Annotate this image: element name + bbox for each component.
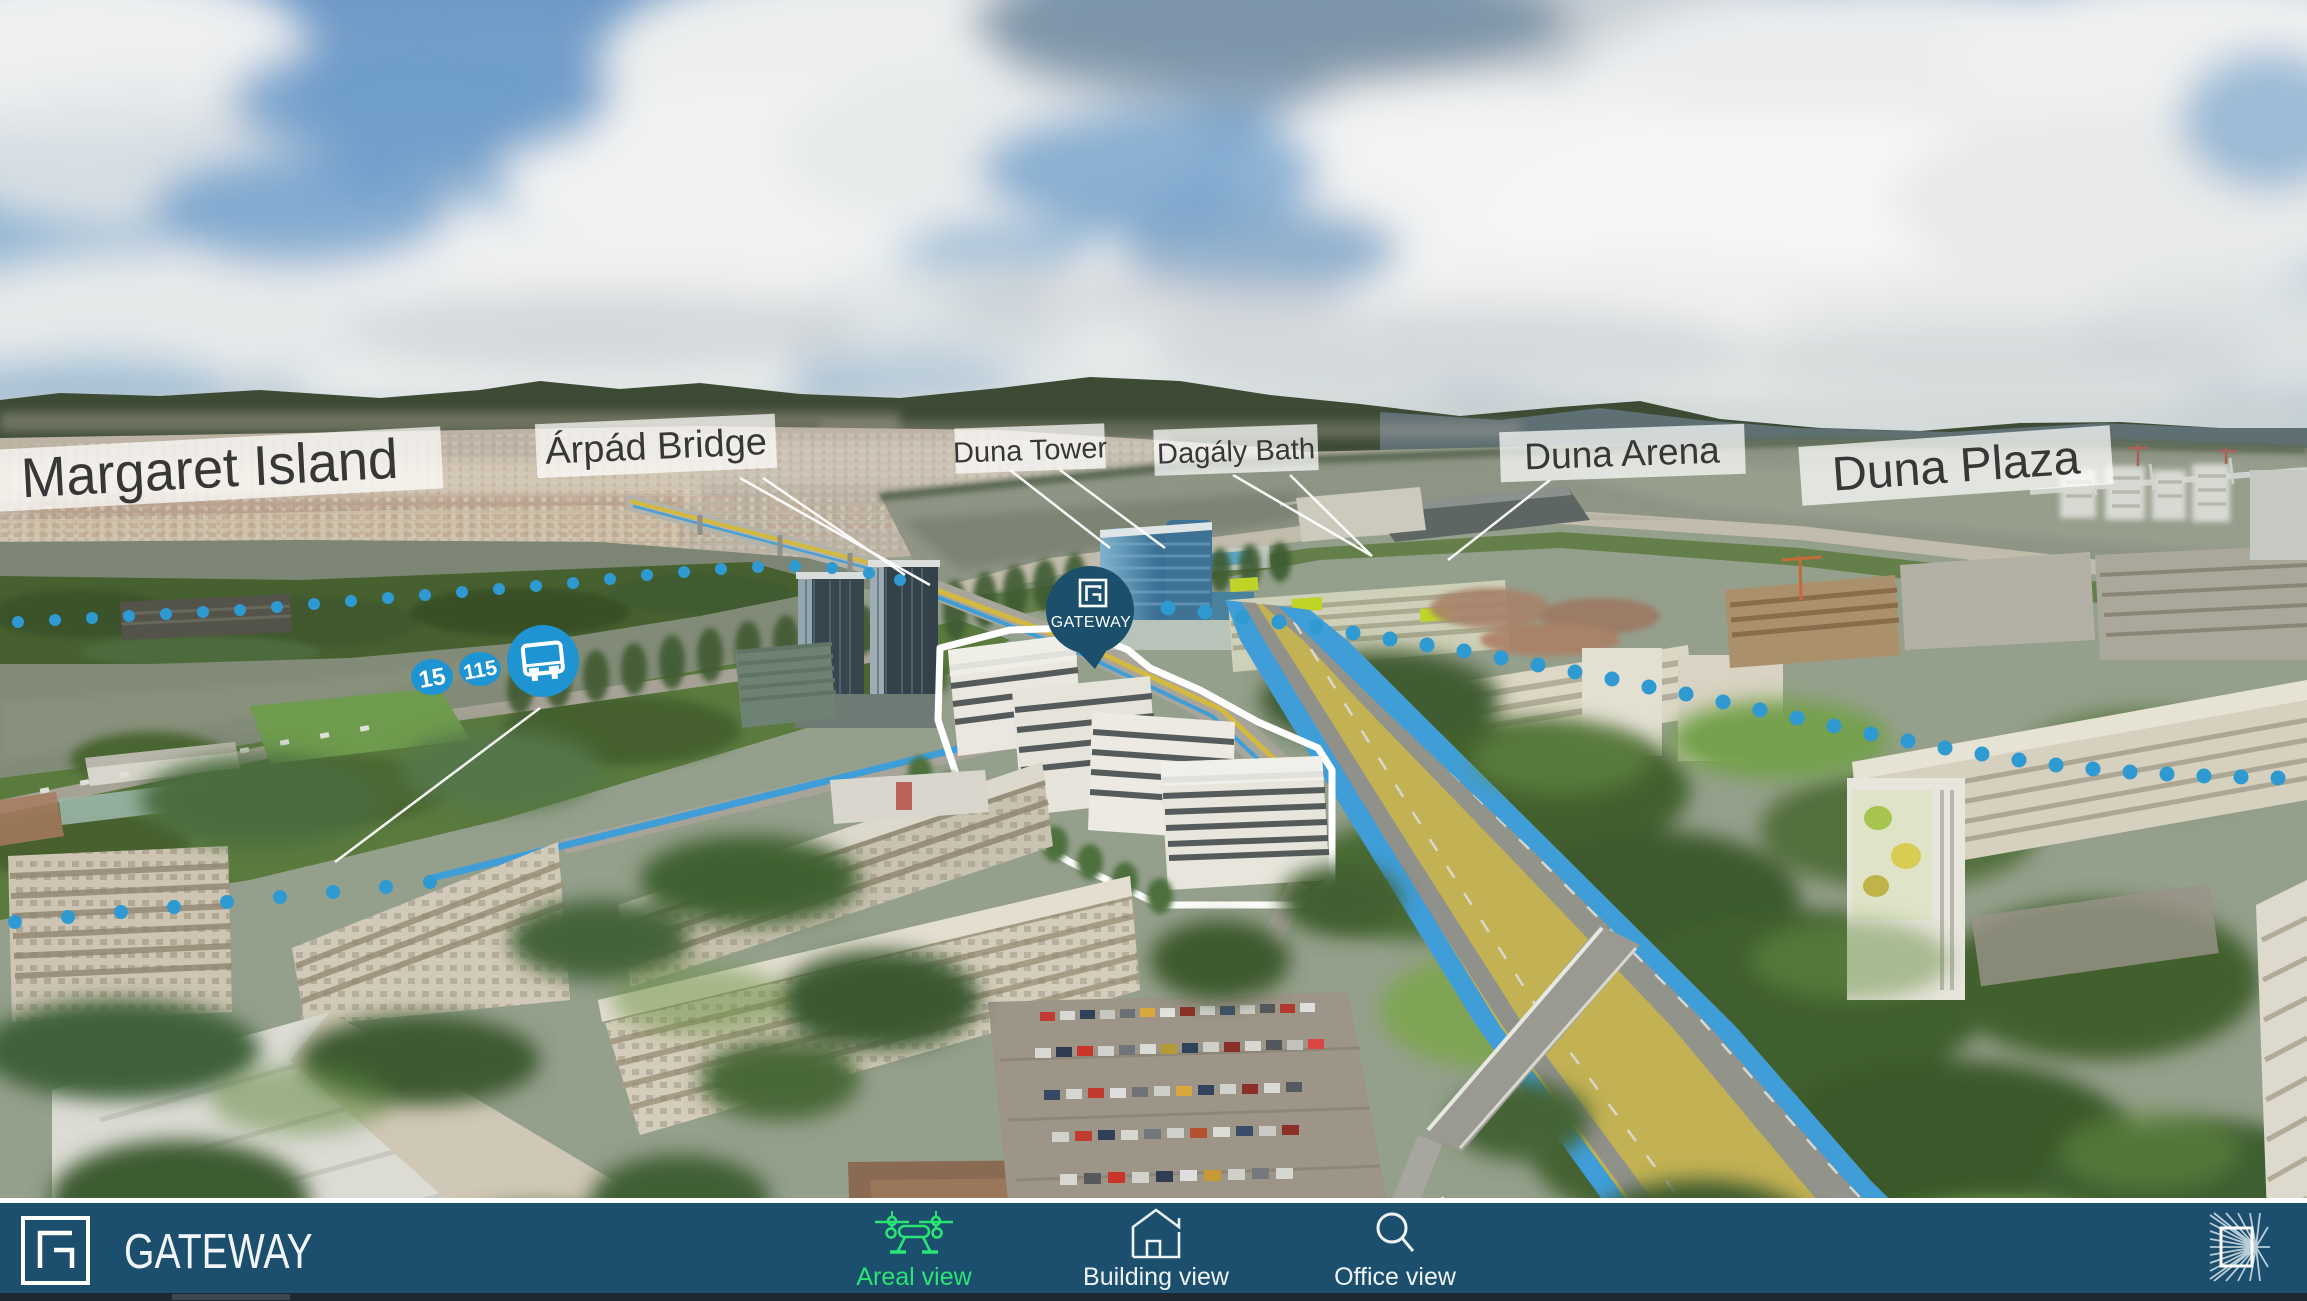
svg-text:GATEWAY: GATEWAY (1051, 614, 1132, 631)
svg-text:Office view: Office view (1334, 1263, 1457, 1291)
svg-text:GATEWAY: GATEWAY (124, 1225, 313, 1279)
svg-text:Building view: Building view (1083, 1263, 1230, 1291)
svg-text:Dagály Bath: Dagály Bath (1157, 433, 1316, 470)
svg-text:Areal view: Areal view (856, 1263, 972, 1291)
svg-text:Duna Arena: Duna Arena (1524, 430, 1721, 478)
svg-text:Duna Tower: Duna Tower (952, 432, 1108, 469)
svg-text:15: 15 (417, 663, 448, 694)
